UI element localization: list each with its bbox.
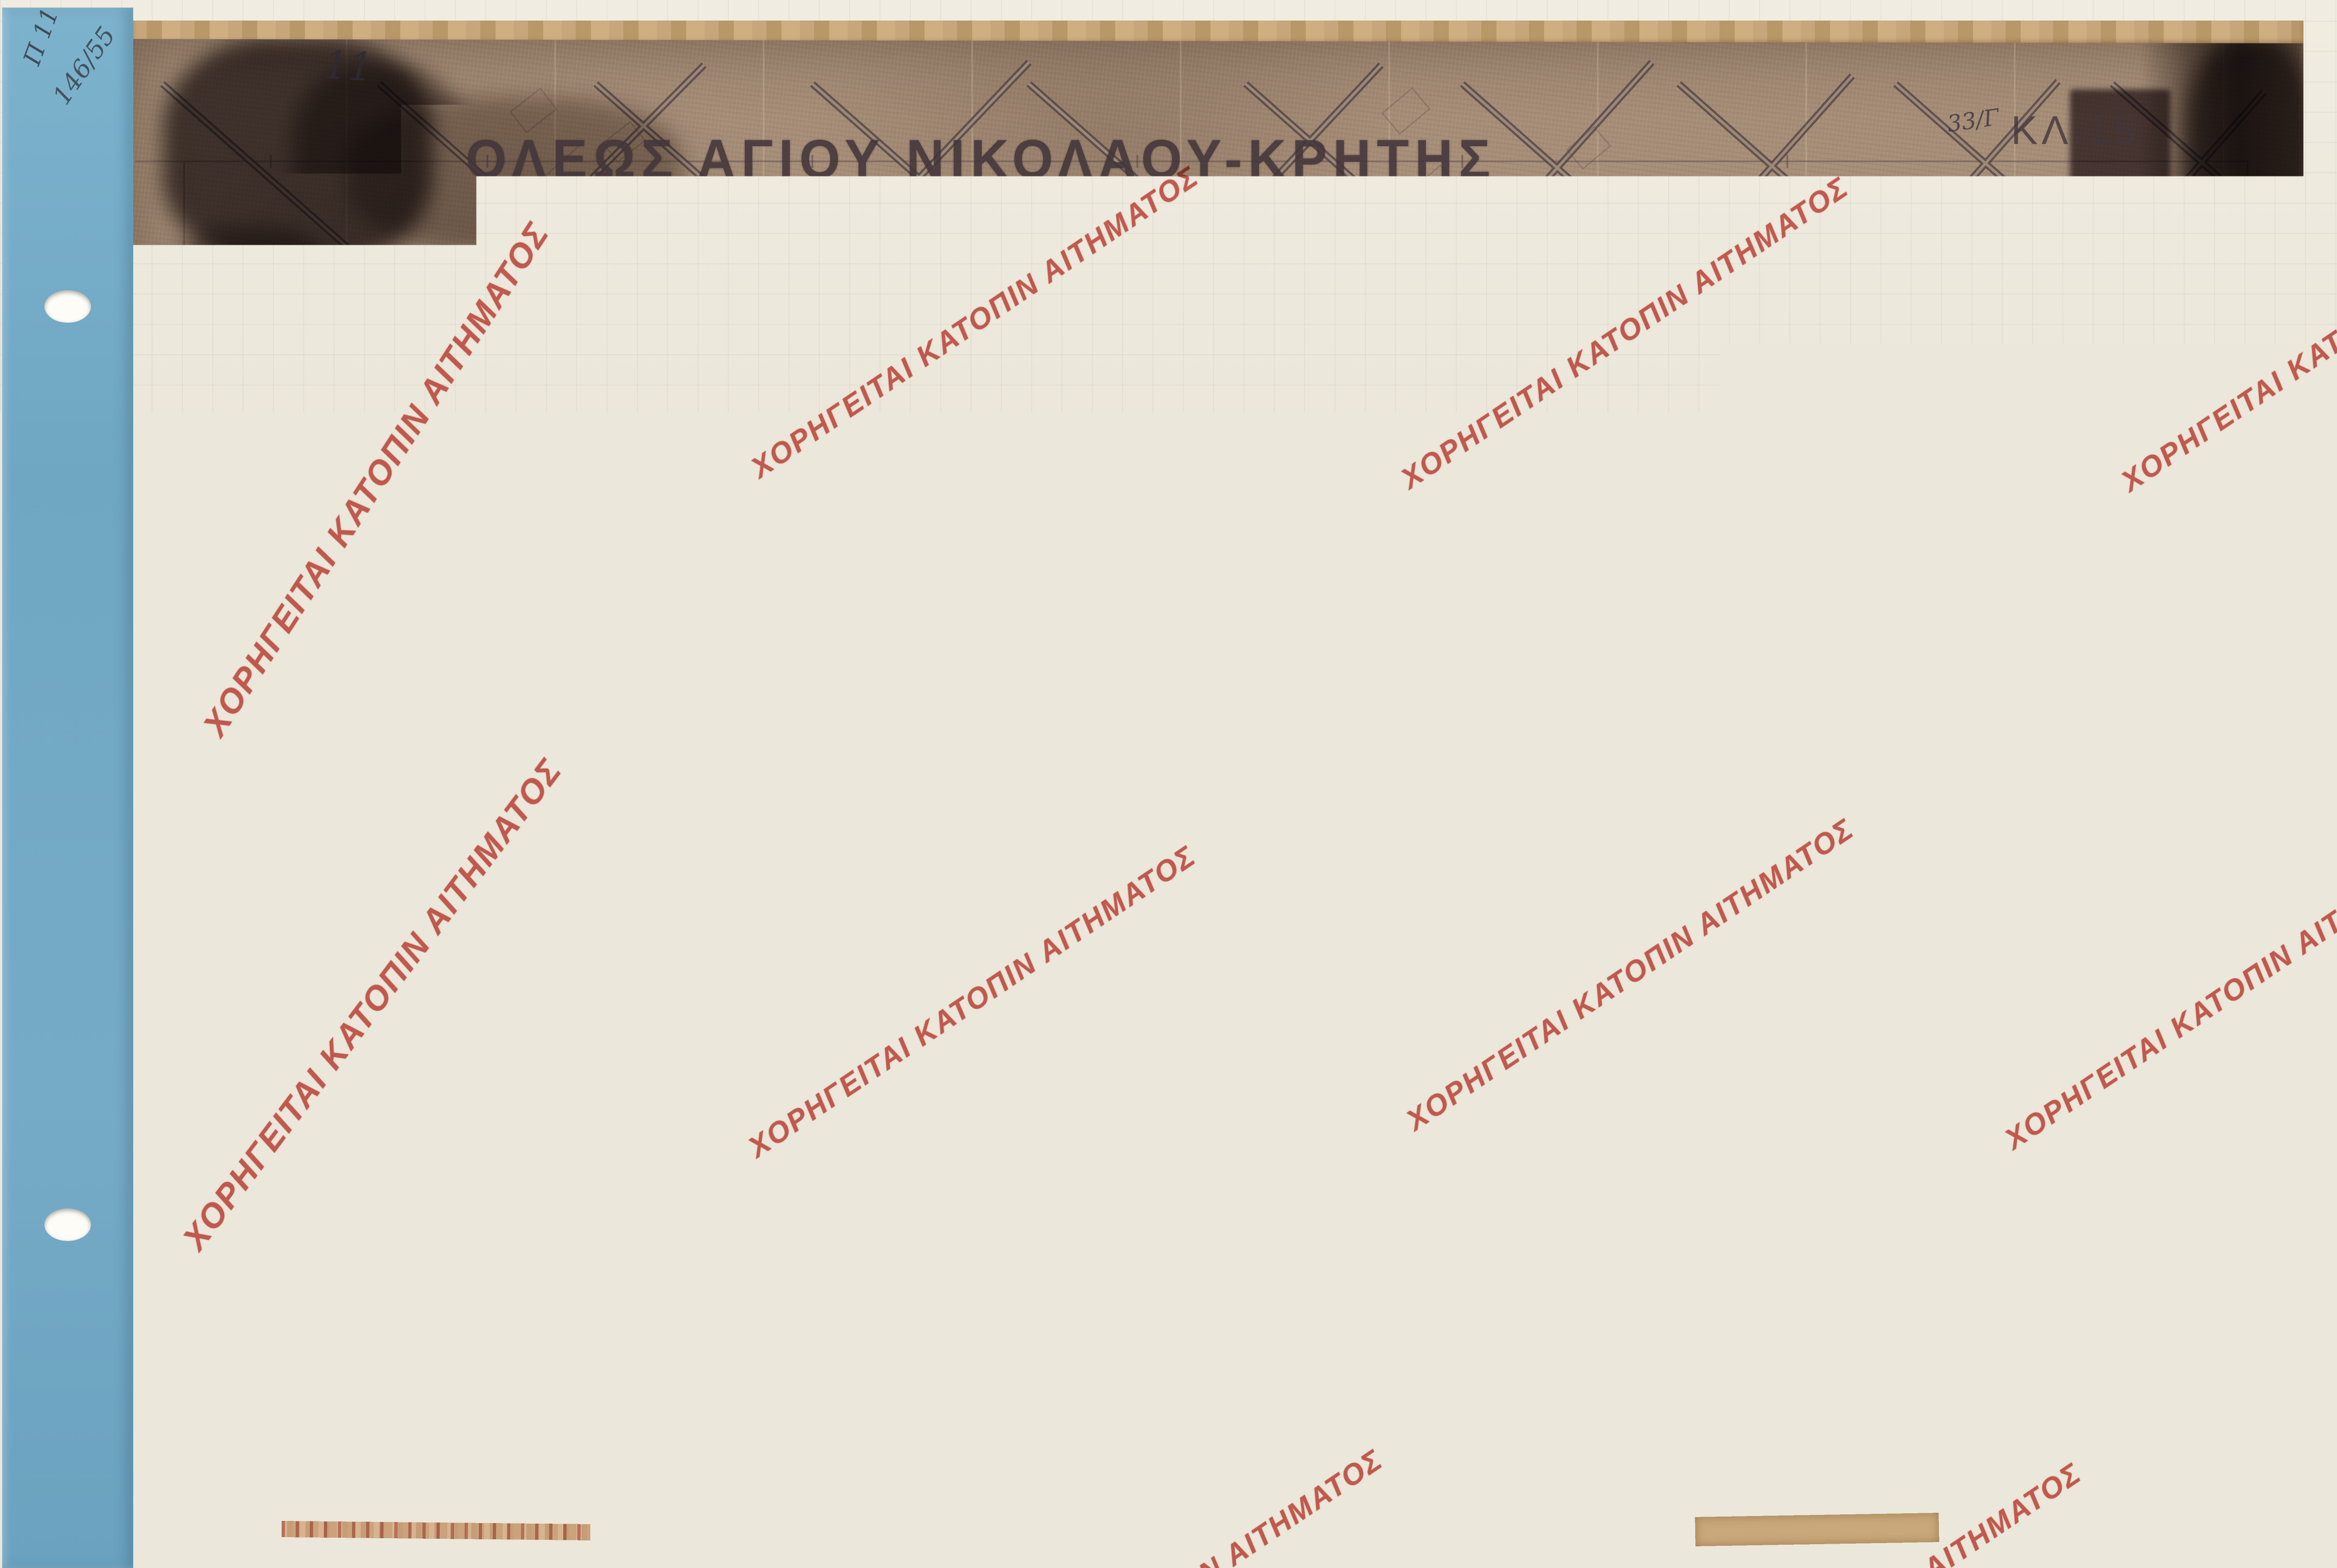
housing-signer: Αχ. Σπανός	[1958, 1387, 2021, 1400]
strip-code-top: Π 11	[18, 4, 64, 69]
directorate: ΔΙΕΥΘΥΝΣΙΣ Ε2	[1619, 1328, 1769, 1342]
housing-gen-dir-label: ΓΕΝ. ΔΙΕΥΘΥΝΤΗΣ	[2116, 1203, 2192, 1212]
map-label-b: Β	[978, 279, 988, 295]
secretary-label: Ο Γραμματεύς	[529, 625, 624, 641]
reviewed-year-prefix: 19	[1728, 1429, 1734, 1435]
note-line: κατά την ημέραν της εγκρίσεως του σχεδίο…	[1270, 1429, 1622, 1462]
tape-fragment-bottom-right	[1695, 1513, 1939, 1546]
col-d: Δ	[1537, 1242, 1558, 1294]
prot-label: ΓΕΝ. ΠΡΩΤ.	[1619, 1513, 1692, 1519]
label-study: ΜΕΛΕΤΗ	[1619, 1378, 1643, 1386]
housing-officials: Σ. ΓΙΛΑΒΑΝΗΣ ΓΕΝ. ΔΙΕΥΘΥΝΤΗΣ Κ. ΔΟΞΙΑΔΗΣ	[1932, 1203, 2290, 1214]
aa: α.α.	[1745, 1448, 1760, 1456]
table-empty-row	[1270, 1343, 1557, 1363]
author-row: Θ. Ρούσσου 18-11-54 ΕΘΕΩΡΗΘΗ ΑΘΗΝΑΙ ΤΗ 1…	[1619, 1402, 1769, 1436]
housing-reviewed-date: 6 Ιουνίου	[2230, 1389, 2276, 1401]
table-header: ΤΟΜΕΥΣ ΟΙΚΟΔΟΜΙΚΟΝ ΣΥΣΤΗΜΑ ΑΡΙΘΜΟΣ ΟΡΟΦΩ…	[1270, 1242, 1557, 1295]
scale-value: 1:500	[1737, 1378, 1773, 1400]
place-label: ΕΝ ΑΘΗΝΑΙΣ ΤΗ	[1833, 273, 1938, 287]
location-row: ΛΑΣΗΘΙΟΥ ΑΓ. ΝΙΚΟΛΑΟΣ Ε2/3	[1619, 1344, 1769, 1374]
decree-date2: 8 Ιουνίου	[1887, 407, 2039, 433]
punch-hole-top	[44, 290, 91, 323]
housing-gen-dir: Κ. ΔΟΞΙΑΔΗΣ	[2195, 1203, 2248, 1212]
draughtsman-label: ΣΧΕΔΙΑΣΑΣ	[1619, 1438, 1625, 1454]
prot-value: 1057	[1618, 1523, 1656, 1544]
approval-stamp: ΑΡΙΘ. ΠΡΩΤ. Ε 19342 ΕΘΕΩΡΗΘΗ ΠΡΟΣ ΕΓΚΡΙΣ…	[1833, 180, 2196, 318]
director-name: Γ. ΒΑΛΑΤΑΣ	[1704, 1456, 1769, 1468]
received-date: 15-11-54	[523, 475, 657, 494]
sel-label: ΣΕΛ. ΘΕΣΕΩΣ	[1619, 1519, 1692, 1525]
housing-reviewed-year: 19	[2278, 1390, 2287, 1399]
draughtsman-name: Κ. Παπαδοπούλου	[1627, 1446, 1707, 1456]
col-area: ΕΜΒΑΔΟΝ	[1408, 1260, 1430, 1294]
approval-date: 25 Μαΐου	[1947, 263, 2110, 290]
table-row: Α ΠΤΕΡΥΓΕΣ 2 8.5 70% 100 7 10 70% 40 4 6	[1270, 1295, 1557, 1319]
discussed-label: Συνεζητήθη	[489, 499, 534, 509]
rapporteur-name: Ν. ΑΠΟΣΤΟΛΟΠΟΥΛΟΣ	[585, 609, 733, 623]
binder-strip: Π 11 146/55	[2, 8, 133, 1568]
approval-place: ΑΘΗΝΑΙ ΤΗ	[1718, 1494, 1750, 1500]
director-row: Ο ΔΙΕΥΘΥΝΤΗΣ Γ. ΒΑΛΑΤΑΣ	[1619, 1456, 1769, 1468]
col-minima-group: ΕΛΑΧΙΣΤΑ ΟΡΙΑ ΟΙΚΟΠΕΔΟΥ	[1408, 1242, 1476, 1260]
housing-approval-year: 19	[2005, 1422, 2013, 1430]
decree-line3: ΧΟΥΣ ΤΗΣ ΕΦΗΜ. ΤΗΣ ΚΥΒΕΡΝΗΣΕΩΣ	[1806, 392, 2196, 405]
decree-line4a: ΤΗΣ	[1855, 417, 1877, 430]
table-row: Β 2 8.5 50% 200 8 14 60% 150 8 12	[1270, 1319, 1557, 1343]
approval-label: ΕΓΚΡΙΣΙΣ	[1739, 1472, 1769, 1480]
col-a: Α	[1476, 1242, 1496, 1294]
col-depth: ΒΑΘΟΣ	[1454, 1260, 1478, 1294]
col-coverage: ΠΟΣΟΣΤΟΝ ΚΑΛΥΨΕΩΣ	[1382, 1242, 1407, 1294]
reviewed-place: ΑΘΗΝΑΙ ΤΗ	[1709, 1419, 1741, 1425]
decree-line1a: ΕΝΕΚΡΙΘΗ ΔΙΑ ΤΟΥ ΑΠΟ	[1806, 348, 1938, 361]
col-frontage: ΠΡΟΣΩΠΟΝ	[1430, 1260, 1454, 1294]
housing-ref-number: 58/349	[1936, 1327, 2028, 1341]
housing-location-row: ΝΟΜΟΣ ΛΑΣΗΘΙΟΥ ΟΙΚΙΣΜΟΣ ΑΓ. ΝΙΚΟΛΑΟΣ Π. …	[1932, 1219, 2290, 1249]
housing-name3: Ε. Βαλάτας	[2036, 1330, 2203, 1344]
reviewed-year: 54	[1737, 1426, 1747, 1436]
approved-label: Ενεκρίθη	[489, 517, 524, 527]
housing-prot-label: ΠΡΩΤ.	[1936, 1312, 2028, 1327]
decree-fek-number: 146	[2011, 365, 2050, 390]
smudged-column	[2208, 1281, 2290, 1384]
subject-row: ΜΕΛΕΤΗ ΤΕΥΧΟΣ ΦΥΛΛΟΝ Τροποποίησις 1:500	[1619, 1376, 1769, 1400]
discussed-value: αυθημερόν	[538, 494, 657, 511]
housing-name1: Α. Σαμαρά	[2036, 1285, 2203, 1300]
housing-ref1: ΥΓ Π.Ε 12-5-50	[1936, 1284, 2028, 1298]
subject-value: Τροποποίησις	[1646, 1378, 1734, 1400]
col-sector: ΤΟΜΕΥΣ	[1270, 1242, 1292, 1294]
housing-review-row: α.α. Αχ. Σπανός Ο ΔΙΕΥΘΥΝΤΗΣ ΕΘΕΩΡΗΘΗ ΕΝ…	[1932, 1384, 2290, 1402]
note-line: ή προερχόμενα εκ ρυμοτομίας ή συμπτύξεως…	[1270, 1400, 1622, 1433]
officer-article: Ο	[1833, 292, 2196, 305]
housing-approval-place: ΑΘΗΝΑΙ ΤΗ	[1936, 1422, 1974, 1430]
label-volume: ΤΕΥΧΟΣ	[1619, 1386, 1643, 1393]
label-sheet: ΦΥΛΛΟΝ	[1619, 1393, 1643, 1400]
note-paragraph: Οικόπεδα υφιστάμενα κατά την ημέραν της …	[1269, 1371, 1623, 1564]
ministry-subtitle: ΥΠΗΡ. ΟΙΚΙΣΜΟΥ	[1619, 1316, 1769, 1325]
decree-line1b: Β. ΔΙΑΤΑΓΜΑΤΟΣ	[2109, 349, 2190, 361]
town-value: ΑΓ. ΝΙΚΟΛΑΟΣ	[1629, 1360, 1714, 1374]
file-code: Ε2/3	[1739, 1353, 1769, 1374]
prefecture-value: ΛΑΣΗΘΙΟΥ	[1635, 1347, 1739, 1360]
approval-year: 55	[2140, 264, 2167, 290]
housing-name2: Α. Απλαωίδης	[2036, 1308, 2203, 1322]
decree-line2a: ΔΗΜΟΣΙΕΥΘΕΝΤΟΣ ΕΙΣ ΤΟ ΥΠ' ΑΡΙΘ.	[1806, 374, 2006, 387]
note-line: σιν ταύτην ισχύει ως μέγιστον ποσοστόν κ…	[1271, 1517, 1623, 1550]
author-date: 18-11-54	[1671, 1406, 1702, 1427]
ministry-box: ΥΠΟΥΡΓΕΙΟΝ ΔΗΜ. ΕΡΓΩΝ ΥΠΗΡ. ΟΙΚΙΣΜΟΥ ΔΙΕ…	[1613, 1301, 1775, 1536]
draughtsman-date: 18-11-54	[1709, 1448, 1743, 1456]
gnom-label: ΑΡ. ΓΝΩΜ. Σ.Ε.	[1619, 1494, 1661, 1500]
building-terms-title: ΟΡΟΙ ΔΟΜΗΣΕΩΣ	[1275, 1218, 1558, 1237]
housing-town: ΑΓ. ΝΙΚΟΛΑΟΣ	[1982, 1234, 2045, 1246]
housing-type-row: Πολεοδομική ΚΛΙΜΑΞ 1:500	[1932, 1249, 2290, 1280]
checker-date: 18-11-54	[1697, 1471, 1735, 1491]
col-floors: ΑΡΙΘΜΟΣ ΟΡΟΦΩΝ	[1338, 1242, 1360, 1294]
page-title: ΟΛΕΩΣ ΑΓΙΟΥ ΝΙΚΟΛΑΟΥ-ΚΡΗΤΗΣ	[466, 128, 1441, 191]
housing-type: Πολεοδομική	[1937, 1254, 2039, 1272]
housing-prefecture: ΛΑΣΗΘΙΟΥ	[1972, 1224, 2019, 1235]
map-label-6a: 6	[507, 1316, 517, 1332]
punch-hole-bottom	[44, 1208, 91, 1241]
decree-year2: 55	[2048, 408, 2074, 432]
housing-bd-year: 19	[2172, 1409, 2179, 1417]
map-sheet: ΟΛΕΩΣ ΑΓΙΟΥ ΝΙΚΟΛΑΟΥ-ΚΡΗΤΗΣ 11 33/Γ ΚΛ.1…	[133, 38, 2303, 1542]
housing-names-row: ΥΓ Π.Ε 12-5-50 ΤΑ ΣΧ 11-9-51 ΠΡΩΤ. 58/34…	[1932, 1280, 2290, 1384]
reviewed-for-approval: ΕΘΕΩΡΗΘΗ ΠΡΟΣ ΕΓΚΡΙΣΙΝ	[1833, 213, 2196, 259]
housing-scale: 1:500	[2145, 1263, 2287, 1277]
housing-director-label: Ο ΔΙΕΥΘΥΝΤΗΣ	[2026, 1390, 2081, 1399]
stain-bottom-left	[352, 1110, 580, 1402]
illegible-header	[488, 465, 602, 474]
col-system: ΟΙΚΟΔΟΜΙΚΟΝ ΣΥΣΤΗΜΑ	[1292, 1242, 1338, 1294]
housing-date3: 16-5-50	[2036, 1344, 2203, 1354]
council-signatures	[458, 552, 837, 715]
ministry-title: ΥΠΟΥΡΓΕΙΟΝ ΔΗΜ. ΕΡΓΩΝ	[1619, 1304, 1769, 1316]
housing-scale-label: ΚΛΙΜΑΞ	[2197, 1253, 2234, 1263]
protocol-value: Ε 19342	[1929, 180, 2030, 208]
sector-label-alpha: Α	[1232, 894, 1329, 1046]
map-label-6b: 6	[371, 1354, 380, 1370]
checker-row: Γ. ΒΑΛΑΤΑΣ 18-11-54 ΕΓΚΡΙΣΙΣ	[1619, 1469, 1769, 1493]
col-c: Γ	[1516, 1242, 1537, 1294]
housing-town-label: ΟΙΚΙΣΜΟΣ	[1936, 1234, 1980, 1245]
decree-stamp: Γ. ΜΑΡΚΑΚΗΣ ΕΝΕΚΡΙΘΗ ΔΙΑ ΤΟΥ ΑΠΟ 1ης Ιου…	[1806, 311, 2196, 433]
housing-prefecture-label: ΝΟΜΟΣ	[1936, 1224, 1970, 1234]
sheet-label: ΚΛ.15	[2011, 107, 2139, 153]
housing-melet: Π. Μελετών	[2144, 1224, 2218, 1237]
author-name: Θ. Ρούσσου	[1619, 1405, 1668, 1429]
housing-reviewed-label: ΕΘΕΩΡΗΘΗ	[2124, 1390, 2167, 1399]
note-line: Οι λοιποί όροι δομήσεως παραμένουν οι αυ…	[1271, 1546, 1623, 1564]
housing-aa: α.α.	[1936, 1389, 1953, 1400]
header-strike-smudge	[2133, 1182, 2263, 1198]
draughtsman-row: ΣΧΕΔΙΑΣΑΣ Κ. Παπαδοπούλου 18-11-54 α.α.	[1619, 1438, 1769, 1456]
tape-fragment-bottom-left	[282, 1521, 590, 1540]
sheet-number-handwritten: 11	[322, 42, 374, 90]
minister-name: Σ. ΓΙΛΑΒΑΝΗΣ	[1974, 1203, 2033, 1214]
housing-reviewed-place: ΕΝ ΑΘΗΝΑΙΣ ΤΗ	[2170, 1390, 2228, 1399]
received-label: Ελήφθη	[489, 483, 519, 493]
decree-date1: 1ης Ιουνίου	[1943, 338, 2072, 364]
housing-ref2: ΤΑ ΣΧ 11-9-51	[1936, 1298, 2028, 1312]
strip-code-number: 146/55	[47, 21, 121, 110]
president-name: Γ. ΜΑΡΚΑΚΗΣ	[475, 609, 564, 623]
secretary-name: Σ. ΑΝΤΩΝΙΑΔΗΣ	[525, 688, 629, 702]
note-line: Οικόπεδα υφιστάμενα κατά την ημέραν της …	[1269, 1371, 1621, 1403]
building-terms: ΟΡΟΙ ΔΟΜΗΣΕΩΣ ΤΟΜΕΥΣ ΟΙΚΟΔΟΜΙΚΟΝ ΣΥΣΤΗΜΑ…	[1269, 1218, 1558, 1384]
director-label: Ο ΔΙΕΥΘΥΝΤΗΣ	[1652, 1460, 1700, 1467]
decree-line2b: ΦΥΛΛΟΝ ΤΟΥ Α' ΤΕΥ-	[2056, 375, 2158, 387]
gnom-label2: Σ.Ο.	[1674, 1494, 1686, 1500]
checker-name: Γ. ΒΑΛΑΤΑΣ	[1619, 1469, 1692, 1493]
gnom-row: ΑΡ. ΓΝΩΜ. Σ.Ε. ___ Σ.Ο. ΑΘΗΝΑΙ ΤΗ ___ 19	[1619, 1494, 1769, 1500]
col-b: Β	[1496, 1242, 1517, 1294]
reviewed-date: 18-11	[1743, 1416, 1766, 1426]
year-prefix: 19	[2118, 273, 2131, 287]
stain-top-right	[2185, 38, 2315, 271]
reviewed-label: ΕΘΕΩΡΗΘΗ	[1705, 1408, 1769, 1416]
decree-signatory: Γ. ΜΑΡΚΑΚΗΣ	[1952, 311, 2196, 332]
gen-director-label: Ο ΓΕΝ. ΔΙΕΥΘΥΝΤΗΣ	[1619, 1500, 1769, 1508]
decree-year1: 55	[2077, 338, 2103, 362]
approved-value: ως έχει η γνωμοδότησις	[528, 511, 658, 539]
col-height: ΜΕΓΙΣΤΟΝ ΥΨΟΣ	[1360, 1242, 1382, 1294]
scanned-town-plan: ΟΛΕΩΣ ΑΓΙΟΥ ΝΙΚΟΛΑΟΥ-ΚΡΗΤΗΣ 11 33/Γ ΚΛ.1…	[0, 0, 2337, 1568]
